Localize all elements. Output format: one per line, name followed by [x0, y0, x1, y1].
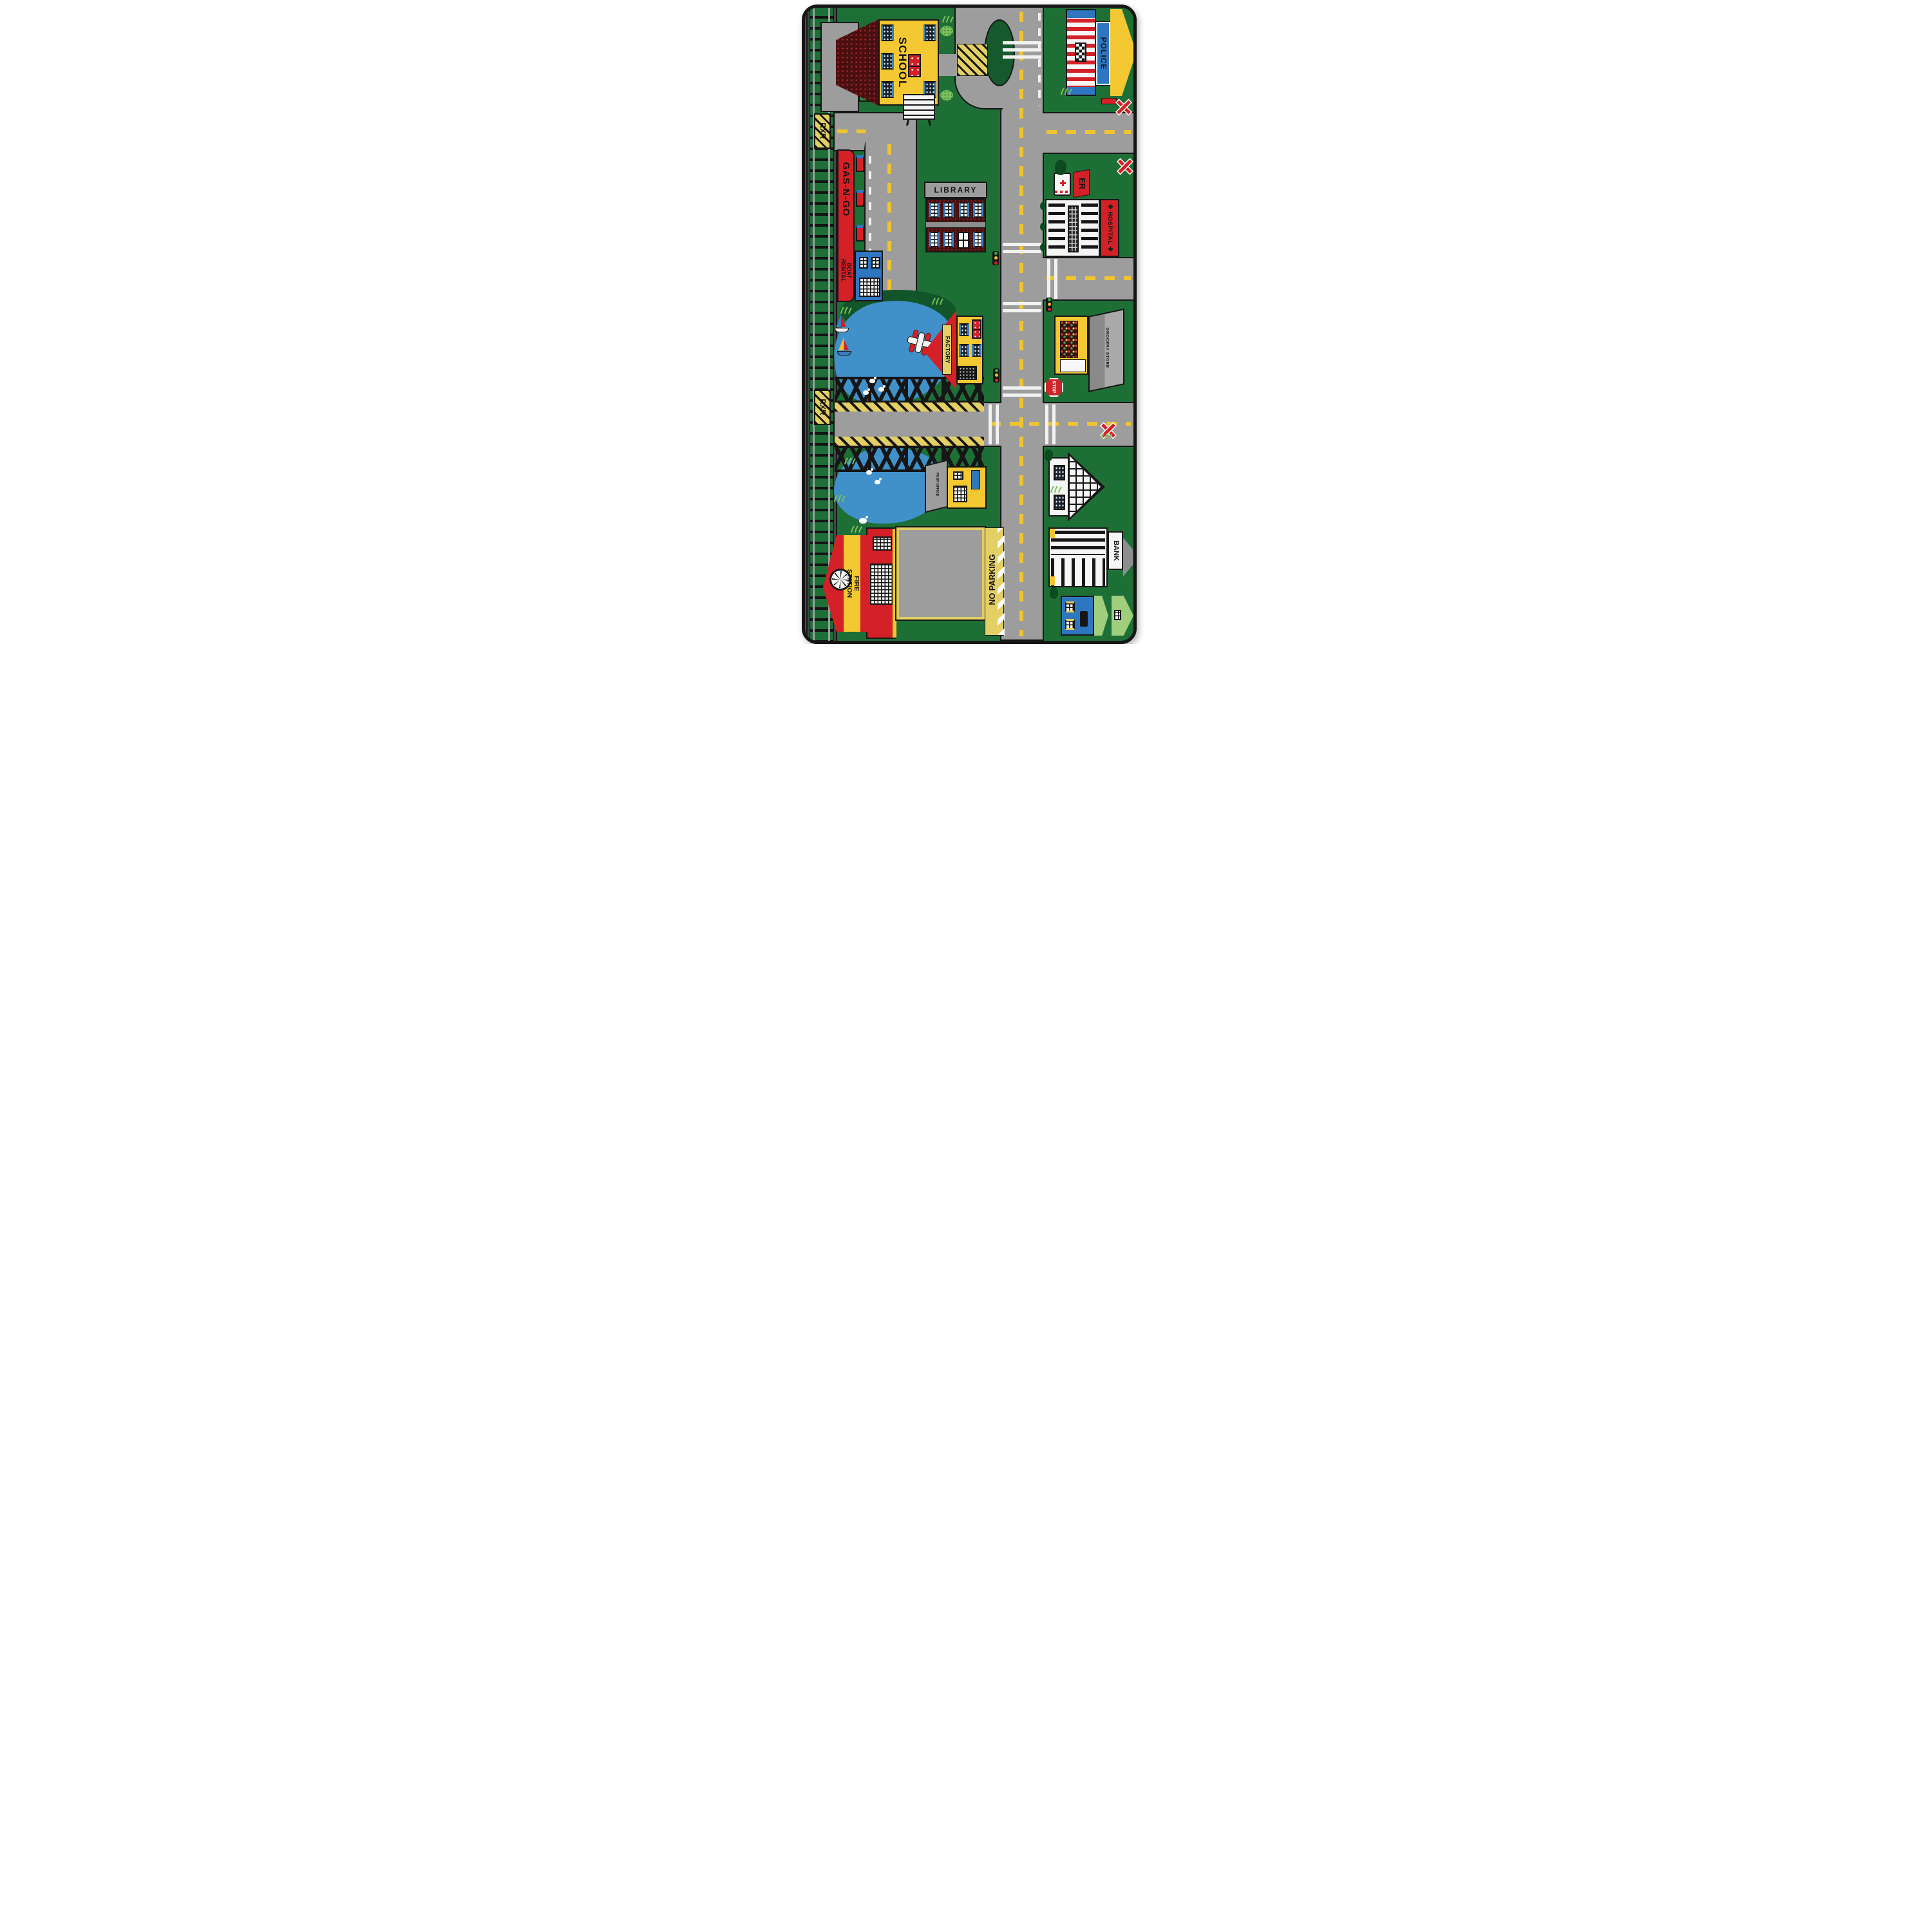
sign-board-leg — [928, 120, 931, 126]
stop-label: STOP — [1051, 381, 1056, 393]
library-label: LIBRARY — [924, 185, 987, 194]
library-window — [973, 232, 983, 247]
police-small-sign — [1101, 98, 1117, 104]
duck-icon — [878, 387, 884, 392]
tree-icon — [1045, 450, 1053, 461]
traffic-light-icon — [992, 251, 999, 265]
factory-window — [959, 323, 969, 336]
boat-rental-window — [859, 257, 868, 269]
edge-line — [1038, 13, 1041, 106]
bridge-deck-hatch-top — [835, 402, 984, 412]
er-label: ER — [1077, 178, 1086, 189]
library-window — [943, 202, 954, 218]
duck-icon — [875, 480, 880, 484]
post-office-window — [953, 486, 967, 502]
grass-tuft-icon — [1050, 486, 1063, 493]
library-window — [943, 232, 954, 247]
police-roof — [1110, 9, 1133, 96]
church-gable — [1068, 452, 1105, 522]
bank-main — [1048, 527, 1108, 587]
library-window — [959, 202, 969, 218]
grocery-produce — [1060, 321, 1078, 358]
hospital-entrance — [1068, 205, 1079, 252]
hospital-label: ✚ HOSPITAL ✚ — [1106, 204, 1113, 252]
church-window — [1054, 495, 1065, 510]
factory-label: FACTORY — [944, 336, 950, 364]
school-window — [881, 81, 894, 98]
hospital-cross-icon: ✚ — [1106, 204, 1113, 209]
grass-tuft-icon — [942, 15, 954, 23]
bank-accent — [1050, 529, 1055, 538]
post-office-label: POST OFFICE — [934, 473, 938, 497]
grocery-label: GROCERY STORE — [1104, 327, 1109, 368]
school-window — [923, 24, 936, 41]
duck-icon — [869, 379, 875, 383]
library-window — [929, 202, 940, 218]
fire-station-label: FIRE STATION — [846, 565, 860, 601]
grass-tuft-icon — [1060, 88, 1073, 95]
bank-accent — [1050, 576, 1055, 585]
grass-tuft-icon — [1100, 433, 1113, 440]
hospital-windows — [1048, 204, 1065, 252]
swan-icon — [859, 518, 867, 524]
factory-window — [959, 344, 969, 357]
gas-pump — [856, 225, 864, 241]
school-window — [881, 53, 894, 70]
fire-station-garage — [866, 527, 896, 639]
school-doors — [908, 54, 921, 77]
grass-tuft-icon — [931, 298, 944, 305]
factory-lower-windows — [958, 366, 977, 380]
post-office-door — [971, 470, 980, 489]
grocery-counter — [1060, 359, 1086, 372]
product-photo-stage: RXR RXR DEPOT SCHOOL — [644, 0, 1288, 644]
traffic-light-icon — [993, 368, 999, 383]
crosswalk — [989, 404, 999, 444]
bank-label: BANK — [1112, 540, 1119, 561]
bank-steps — [1123, 538, 1133, 576]
fire-station-window — [873, 536, 892, 551]
post-office-window — [953, 471, 963, 480]
fire-station-window — [870, 563, 893, 605]
crosswalk — [1003, 41, 1041, 59]
boat-hull — [835, 328, 849, 332]
gas-pump — [856, 190, 864, 207]
police-station: POLICE — [1066, 9, 1133, 96]
police-label: POLICE — [1099, 37, 1108, 70]
boat-hull — [837, 351, 851, 355]
hospital-windows — [1081, 204, 1098, 252]
library-window — [973, 202, 983, 218]
grocery-stand — [1054, 316, 1088, 375]
post-office-facade — [947, 466, 987, 509]
crosswalk — [1003, 302, 1041, 315]
red-cross-icon — [1060, 180, 1066, 186]
house-window — [1114, 610, 1121, 620]
factory-window — [972, 344, 981, 357]
rxr-sign: RXR — [814, 390, 831, 425]
school-window — [881, 24, 894, 41]
school-building: SCHOOL — [836, 19, 939, 106]
bank-columns — [1051, 558, 1105, 586]
center-line — [887, 144, 891, 298]
school-sign-board — [903, 94, 935, 120]
bank-building: BANK — [1048, 525, 1133, 587]
library-door — [958, 232, 969, 249]
school-roof — [836, 19, 878, 106]
center-line — [1019, 12, 1023, 636]
sail-icon — [842, 317, 846, 327]
railroad-crossing-x-icon — [1117, 158, 1133, 175]
boat-rental-building — [855, 251, 883, 301]
house-door — [1080, 611, 1088, 627]
sailboat — [835, 314, 848, 334]
library-window — [929, 232, 940, 247]
duck-icon — [866, 470, 872, 475]
grass-tuft-icon — [844, 457, 857, 465]
center-line — [1046, 276, 1131, 280]
ambulance — [1054, 173, 1071, 196]
gas-pump — [856, 155, 864, 172]
church-gable-face — [1070, 456, 1101, 518]
school-bush — [940, 90, 953, 100]
grass-tuft-icon — [850, 526, 863, 533]
railroad-rail-left — [813, 8, 815, 641]
crosswalk — [1045, 404, 1056, 444]
rxr-label: RXR — [819, 399, 827, 415]
tree-icon — [1050, 587, 1058, 599]
center-line — [837, 129, 866, 133]
bridge-deck-hatch-bottom — [835, 437, 984, 446]
railroad-crossing-x-icon — [1115, 99, 1132, 116]
boat-rental-window — [871, 257, 880, 269]
bank-window-stripes — [1051, 531, 1105, 555]
post-office: POST OFFICE — [925, 462, 988, 513]
rxr-label: RXR — [819, 122, 827, 138]
church-window — [1054, 465, 1065, 480]
sail-icon — [838, 337, 844, 350]
grass-tuft-icon — [840, 307, 853, 314]
rxr-sign: RXR — [814, 113, 831, 149]
no-parking-stripes — [998, 528, 1004, 635]
blue-house-roof — [1094, 596, 1108, 636]
police-blue-band — [1067, 10, 1095, 18]
gas-station-label: GAS-N-GO — [840, 162, 851, 217]
bus-crossing-hatch — [957, 44, 988, 76]
fire-station: FIRE STATION — [823, 527, 896, 639]
grass-tuft-icon — [833, 495, 846, 502]
hospital-bush — [1040, 243, 1045, 251]
tree-icon — [1055, 160, 1066, 175]
school-label: SCHOOL — [896, 37, 908, 88]
crosswalk — [1003, 243, 1041, 256]
blue-house — [1061, 596, 1094, 636]
boat-rental-label: BOAT RENTAL — [840, 255, 852, 286]
ambulance-stripe — [1055, 191, 1070, 193]
no-parking-label: NO PARKING — [988, 554, 997, 605]
library-ledge — [925, 222, 986, 228]
sailboat — [837, 337, 850, 357]
boat-rental-window — [859, 278, 880, 297]
crosswalk — [1003, 386, 1041, 399]
hospital-building — [1045, 199, 1100, 257]
library-building: LIBRARY — [924, 182, 987, 252]
corner-house-roof — [1112, 596, 1133, 636]
house-window — [1065, 601, 1075, 612]
sail-icon — [836, 314, 841, 327]
duck-icon — [863, 390, 869, 395]
factory-doors — [972, 319, 981, 339]
center-line — [1046, 130, 1131, 134]
house-window — [1065, 619, 1075, 630]
hospital-bush — [1040, 223, 1045, 231]
school-bush — [940, 26, 953, 36]
crosswalk — [1047, 259, 1057, 299]
play-rug: RXR RXR DEPOT SCHOOL — [802, 5, 1137, 644]
hospital-cross-icon: ✚ — [1106, 247, 1113, 252]
traffic-light-icon — [1046, 298, 1052, 312]
hospital-bush — [1040, 202, 1045, 210]
factory-building: FACTORY — [924, 310, 983, 390]
parking-lot — [896, 527, 985, 620]
police-checker-door — [1075, 43, 1086, 62]
hospital-label-text: HOSPITAL — [1106, 211, 1113, 244]
sail-icon — [844, 340, 849, 350]
school-walkway — [939, 54, 956, 76]
